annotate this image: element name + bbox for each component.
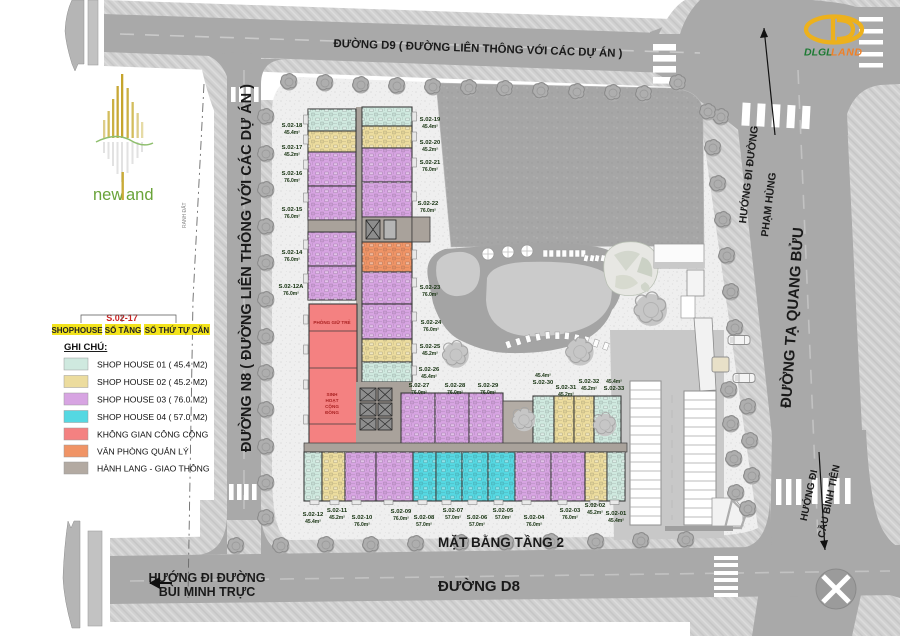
svg-text:new: new <box>93 186 123 204</box>
svg-text:S.02-14: S.02-14 <box>282 250 303 256</box>
svg-text:S.02-22: S.02-22 <box>418 201 439 207</box>
svg-text:SINH: SINH <box>327 392 339 397</box>
svg-text:S.02-27: S.02-27 <box>409 383 430 389</box>
svg-text:KHÔNG GIAN CÔNG CỘNG: KHÔNG GIAN CÔNG CỘNG <box>97 430 209 440</box>
svg-text:S.02-33: S.02-33 <box>604 386 625 392</box>
svg-text:S.02-11: S.02-11 <box>327 508 348 514</box>
svg-text:S.02-03: S.02-03 <box>560 508 581 514</box>
svg-text:SHOP HOUSE 03 ( 76.0 M2): SHOP HOUSE 03 ( 76.0 M2) <box>97 395 208 405</box>
svg-text:45.2m²: 45.2m² <box>422 351 438 357</box>
svg-text:76.0m²: 76.0m² <box>283 291 299 297</box>
svg-text:S.02-04: S.02-04 <box>524 515 545 521</box>
svg-text:57.0m²: 57.0m² <box>416 522 432 528</box>
svg-text:S.02-25: S.02-25 <box>420 344 441 350</box>
svg-text:45.2m²: 45.2m² <box>587 510 603 516</box>
svg-text:57.0m²: 57.0m² <box>445 515 461 521</box>
svg-text:LAND: LAND <box>831 47 863 59</box>
svg-text:76.0m²: 76.0m² <box>480 390 496 396</box>
svg-text:SHOP HOUSE 02 ( 45.2 M2): SHOP HOUSE 02 ( 45.2 M2) <box>97 377 208 387</box>
svg-text:76.0m²: 76.0m² <box>422 167 438 173</box>
svg-text:76.0m²: 76.0m² <box>393 516 409 522</box>
svg-text:45.4m²: 45.4m² <box>606 379 622 385</box>
svg-text:45.4m²: 45.4m² <box>535 373 551 379</box>
svg-text:S.02-16: S.02-16 <box>282 171 303 177</box>
svg-text:45.4m²: 45.4m² <box>284 130 300 136</box>
svg-text:S.02-01: S.02-01 <box>606 511 627 517</box>
svg-text:S.02-10: S.02-10 <box>352 515 373 521</box>
svg-text:S.02-17: S.02-17 <box>282 145 303 151</box>
svg-text:S.02-31: S.02-31 <box>556 385 577 391</box>
svg-text:76.0m²: 76.0m² <box>284 257 300 263</box>
svg-text:45.2m²: 45.2m² <box>329 515 345 521</box>
svg-text:76.0m²: 76.0m² <box>411 390 427 396</box>
svg-text:45.2m²: 45.2m² <box>558 392 574 398</box>
svg-text:45.4m²: 45.4m² <box>305 519 321 525</box>
svg-text:and: and <box>126 186 154 204</box>
svg-text:76.0m²: 76.0m² <box>284 178 300 184</box>
svg-text:HOẠT: HOẠT <box>325 398 338 403</box>
svg-text:76.0m²: 76.0m² <box>284 214 300 220</box>
svg-text:S.02-28: S.02-28 <box>445 383 466 389</box>
svg-text:45.2m²: 45.2m² <box>284 152 300 158</box>
svg-text:45.4m²: 45.4m² <box>422 124 438 130</box>
svg-text:76.0m²: 76.0m² <box>354 522 370 528</box>
svg-text:S.02-05: S.02-05 <box>493 508 514 514</box>
svg-text:ĐỒNG: ĐỒNG <box>325 409 339 415</box>
svg-text:S.02-21: S.02-21 <box>420 160 441 166</box>
svg-text:45.4m²: 45.4m² <box>421 374 437 380</box>
svg-text:SHOPHOUSE: SHOPHOUSE <box>51 326 103 335</box>
svg-text:57.0m²: 57.0m² <box>495 515 511 521</box>
svg-text:76.0m²: 76.0m² <box>423 327 439 333</box>
svg-text:S.02-07: S.02-07 <box>443 508 464 514</box>
svg-text:S.02-29: S.02-29 <box>478 383 499 389</box>
svg-text:PHÒNG GIỮ TRẺ: PHÒNG GIỮ TRẺ <box>313 318 350 325</box>
svg-text:SỐ THỨ TỰ CĂN: SỐ THỨ TỰ CĂN <box>145 325 210 335</box>
svg-text:CỘNG: CỘNG <box>325 402 339 409</box>
svg-text:S.02-32: S.02-32 <box>579 379 600 385</box>
svg-text:MẶT BẰNG TẦNG 2: MẶT BẰNG TẦNG 2 <box>438 535 564 550</box>
svg-text:SHOP HOUSE 01 ( 45.4 M2): SHOP HOUSE 01 ( 45.4 M2) <box>97 360 208 370</box>
svg-text:45.4m²: 45.4m² <box>608 518 624 524</box>
svg-text:ĐƯỜNG N8 ( ĐƯỜNG LIÊN THÔNG VỚ: ĐƯỜNG N8 ( ĐƯỜNG LIÊN THÔNG VỚI CÁC DỰ Á… <box>237 84 255 452</box>
svg-text:GHI CHÚ:: GHI CHÚ: <box>64 341 107 353</box>
svg-text:S.02-19: S.02-19 <box>420 117 441 123</box>
svg-text:DLGL: DLGL <box>804 47 833 59</box>
svg-text:S.02-06: S.02-06 <box>467 515 488 521</box>
svg-text:SỐ TẦNG: SỐ TẦNG <box>105 325 141 335</box>
svg-text:SHOP HOUSE 04 ( 57.0 M2): SHOP HOUSE 04 ( 57.0 M2) <box>97 412 208 422</box>
svg-text:HÀNH LANG - GIAO THÔNG: HÀNH LANG - GIAO THÔNG <box>97 464 210 474</box>
svg-text:BÙI MINH TRỰC: BÙI MINH TRỰC <box>159 584 255 599</box>
svg-text:S.02-18: S.02-18 <box>282 123 303 129</box>
svg-text:S.02-12A: S.02-12A <box>279 284 305 290</box>
svg-text:S.02-26: S.02-26 <box>419 367 440 373</box>
svg-text:VĂN PHÒNG QUẢN LÝ: VĂN PHÒNG QUẢN LÝ <box>97 446 189 457</box>
svg-text:S.02-20: S.02-20 <box>420 140 441 146</box>
svg-text:RANH ĐẤT: RANH ĐẤT <box>181 202 188 228</box>
svg-text:76.0m²: 76.0m² <box>562 515 578 521</box>
svg-text:S.02-30: S.02-30 <box>533 380 554 386</box>
svg-text:45.2m²: 45.2m² <box>581 386 597 392</box>
svg-text:S.02-24: S.02-24 <box>421 320 442 326</box>
svg-text:S.02-15: S.02-15 <box>282 207 303 213</box>
svg-text:S.02-23: S.02-23 <box>420 285 441 291</box>
svg-text:45.2m²: 45.2m² <box>422 147 438 153</box>
svg-text:S.02-08: S.02-08 <box>414 515 435 521</box>
svg-text:76.0m²: 76.0m² <box>420 208 436 214</box>
svg-text:S.02-02: S.02-02 <box>585 503 606 509</box>
svg-text:S.02-09: S.02-09 <box>391 509 412 515</box>
svg-text:76.0m²: 76.0m² <box>526 522 542 528</box>
svg-text:76.0m²: 76.0m² <box>447 390 463 396</box>
svg-text:57.0m²: 57.0m² <box>469 522 485 528</box>
svg-text:76.0m²: 76.0m² <box>422 292 438 298</box>
svg-text:ĐƯỜNG D8: ĐƯỜNG D8 <box>438 577 520 595</box>
svg-text:S.02-12: S.02-12 <box>303 512 324 518</box>
